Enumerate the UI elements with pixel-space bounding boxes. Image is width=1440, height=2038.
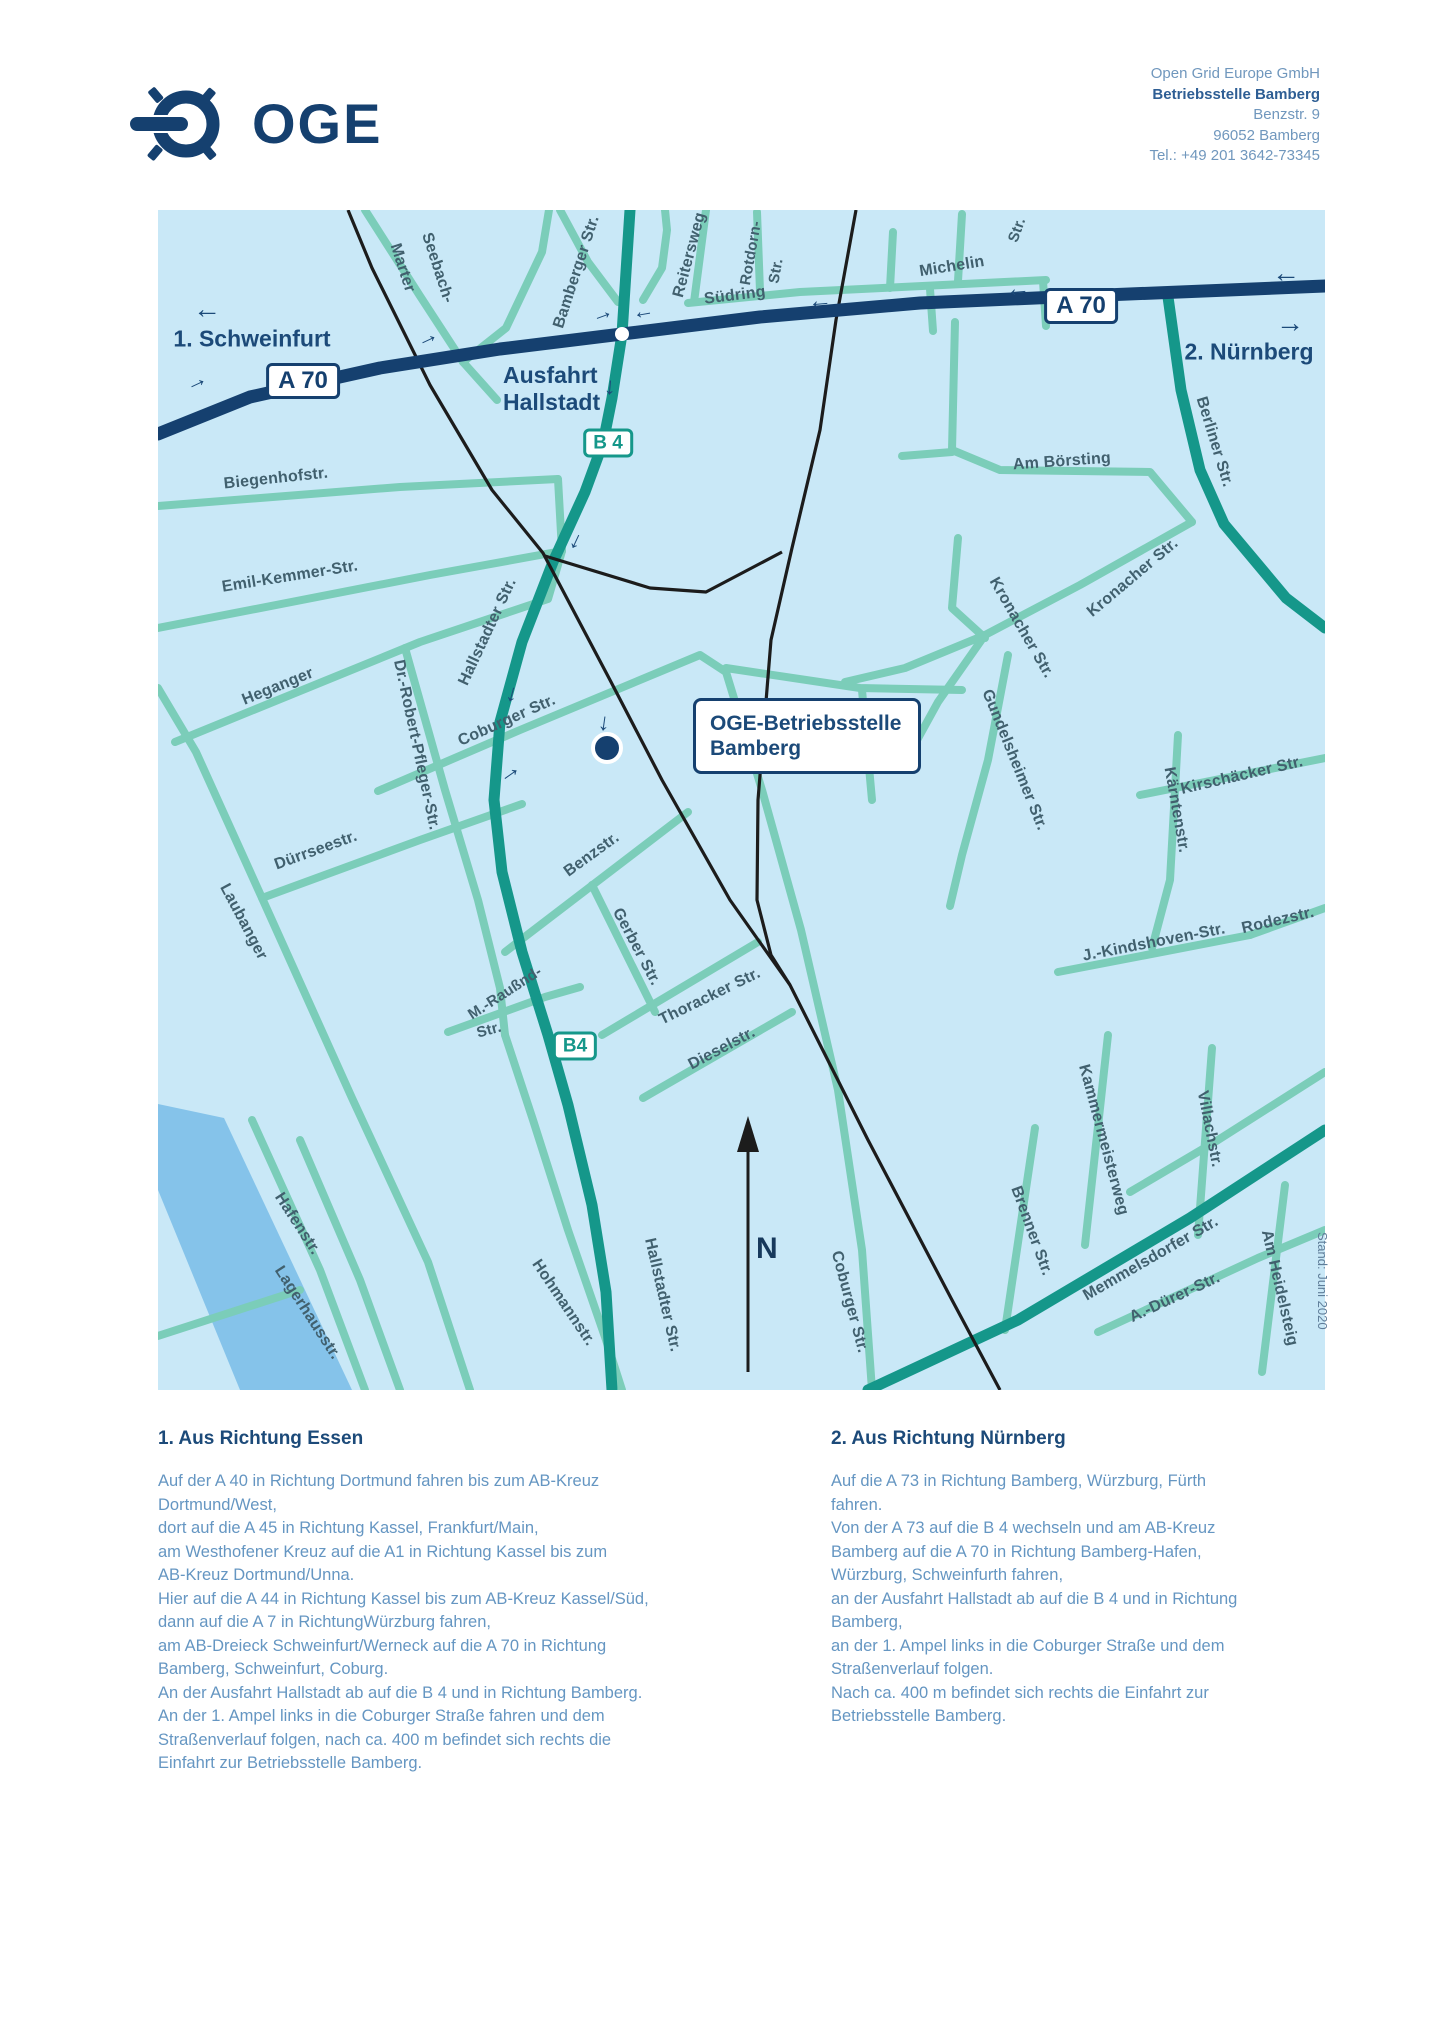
route-arrow-icon: ← bbox=[1005, 276, 1031, 302]
a70-badge: A 70 bbox=[266, 363, 340, 399]
directions-essen: 1. Aus Richtung Essen Auf der A 40 in Ri… bbox=[158, 1428, 738, 1776]
route-arrow-icon: ← bbox=[193, 295, 221, 323]
oge-logo: OGE bbox=[130, 82, 382, 166]
oge-location-dot bbox=[593, 734, 621, 762]
address-street: Benzstr. 9 bbox=[1149, 105, 1320, 126]
ausfahrt-hallstadt-label: Ausfahrt Hallstadt bbox=[503, 362, 600, 416]
stand-date-note: Stand: Juni 2020 bbox=[1315, 1232, 1330, 1248]
directions-essen-heading: 1. Aus Richtung Essen bbox=[158, 1428, 738, 1450]
route-arrow-icon: ← bbox=[1272, 259, 1300, 287]
callout-line2: Bamberg bbox=[710, 736, 918, 761]
address-phone: Tel.: +49 201 3642-73345 bbox=[1149, 146, 1320, 167]
b4-badge: B4 bbox=[553, 1032, 597, 1061]
oge-wordmark: OGE bbox=[252, 96, 382, 152]
exit-dot bbox=[615, 327, 629, 341]
page: OGE Open Grid Europe GmbH Betriebsstelle… bbox=[0, 0, 1440, 2038]
address-block: Open Grid Europe GmbH Betriebsstelle Bam… bbox=[1149, 64, 1320, 167]
site-map: 1. Schweinfurt2. Nürnberg MarterSeebach-… bbox=[158, 210, 1325, 1390]
compass-north-label: N bbox=[756, 1232, 778, 1266]
callout-line1: OGE-Betriebsstelle bbox=[710, 711, 918, 736]
address-company: Open Grid Europe GmbH bbox=[1149, 64, 1320, 85]
road-a70 bbox=[158, 286, 1325, 434]
address-city: 96052 Bamberg bbox=[1149, 126, 1320, 147]
region-label: 1. Schweinfurt bbox=[173, 326, 330, 353]
oge-callout-box: OGE-Betriebsstelle Bamberg bbox=[693, 698, 921, 774]
directions-nuernberg: 2. Aus Richtung Nürnberg Auf die A 73 in… bbox=[831, 1428, 1331, 1729]
region-label: 2. Nürnberg bbox=[1184, 339, 1313, 366]
bundesstrassen bbox=[494, 210, 1325, 1390]
ausfahrt-line1: Ausfahrt bbox=[503, 362, 600, 389]
directions-nuernberg-heading: 2. Aus Richtung Nürnberg bbox=[831, 1428, 1331, 1450]
route-arrow-icon: ← bbox=[630, 298, 655, 323]
b4-badge: B 4 bbox=[583, 429, 633, 458]
ausfahrt-line2: Hallstadt bbox=[503, 389, 600, 416]
a70-badge: A 70 bbox=[1044, 288, 1118, 324]
oge-logo-icon bbox=[130, 82, 234, 166]
address-site: Betriebsstelle Bamberg bbox=[1149, 85, 1320, 106]
route-arrow-icon: ↓ bbox=[603, 375, 617, 400]
directions-nuernberg-body: Auf die A 73 in Richtung Bamberg, Würzbu… bbox=[831, 1470, 1331, 1729]
directions-essen-body: Auf der A 40 in Richtung Dortmund fahren… bbox=[158, 1470, 738, 1776]
route-arrow-icon: → bbox=[1276, 309, 1304, 337]
route-arrow-icon: ← bbox=[807, 288, 833, 314]
